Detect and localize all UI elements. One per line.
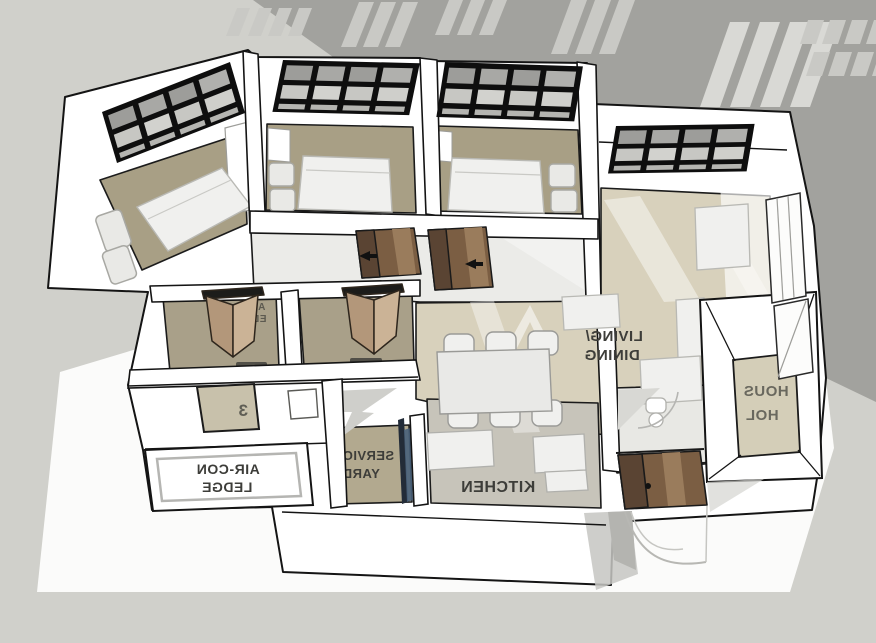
dining-table [437,349,552,414]
bedroom-b-tall-panel [268,128,290,162]
floorplan-render: AIR ED LIVING/ DIN [0,0,876,643]
sideboard [562,294,620,330]
bedroom-door-2 [428,227,493,290]
bed [448,158,544,213]
main-door [618,451,707,509]
svg-text:AIR-CON: AIR-CON [196,461,259,477]
wardrobe [269,163,294,186]
window-bedroom-c [436,62,583,121]
panel-digit: 3 [238,401,248,420]
counter [533,434,586,473]
svg-text:LEDGE: LEDGE [202,479,253,495]
counter [427,430,494,470]
door-handle [645,483,651,489]
svg-text:LIVING/: LIVING/ [585,328,643,345]
wardrobe [551,190,577,212]
window-bedroom-b [272,60,419,115]
window-living [608,124,755,174]
wardrobe [549,164,575,187]
bed [298,156,392,212]
kitchen-label: KITCHEN [461,479,536,496]
step-panel [288,389,318,419]
svg-text:HOL: HOL [745,407,778,424]
dining-set [437,331,562,428]
service-right-wall [410,414,428,506]
tv-console [695,204,750,270]
counter [545,470,588,492]
svg-text:HOUS: HOUS [743,383,788,400]
svg-text:DINING: DINING [584,347,640,364]
skylight-panel [197,384,259,432]
toilet [646,398,666,413]
wardrobe [270,189,295,211]
svg-text:YARD: YARD [342,466,380,481]
bedroom-door-1 [356,228,421,278]
